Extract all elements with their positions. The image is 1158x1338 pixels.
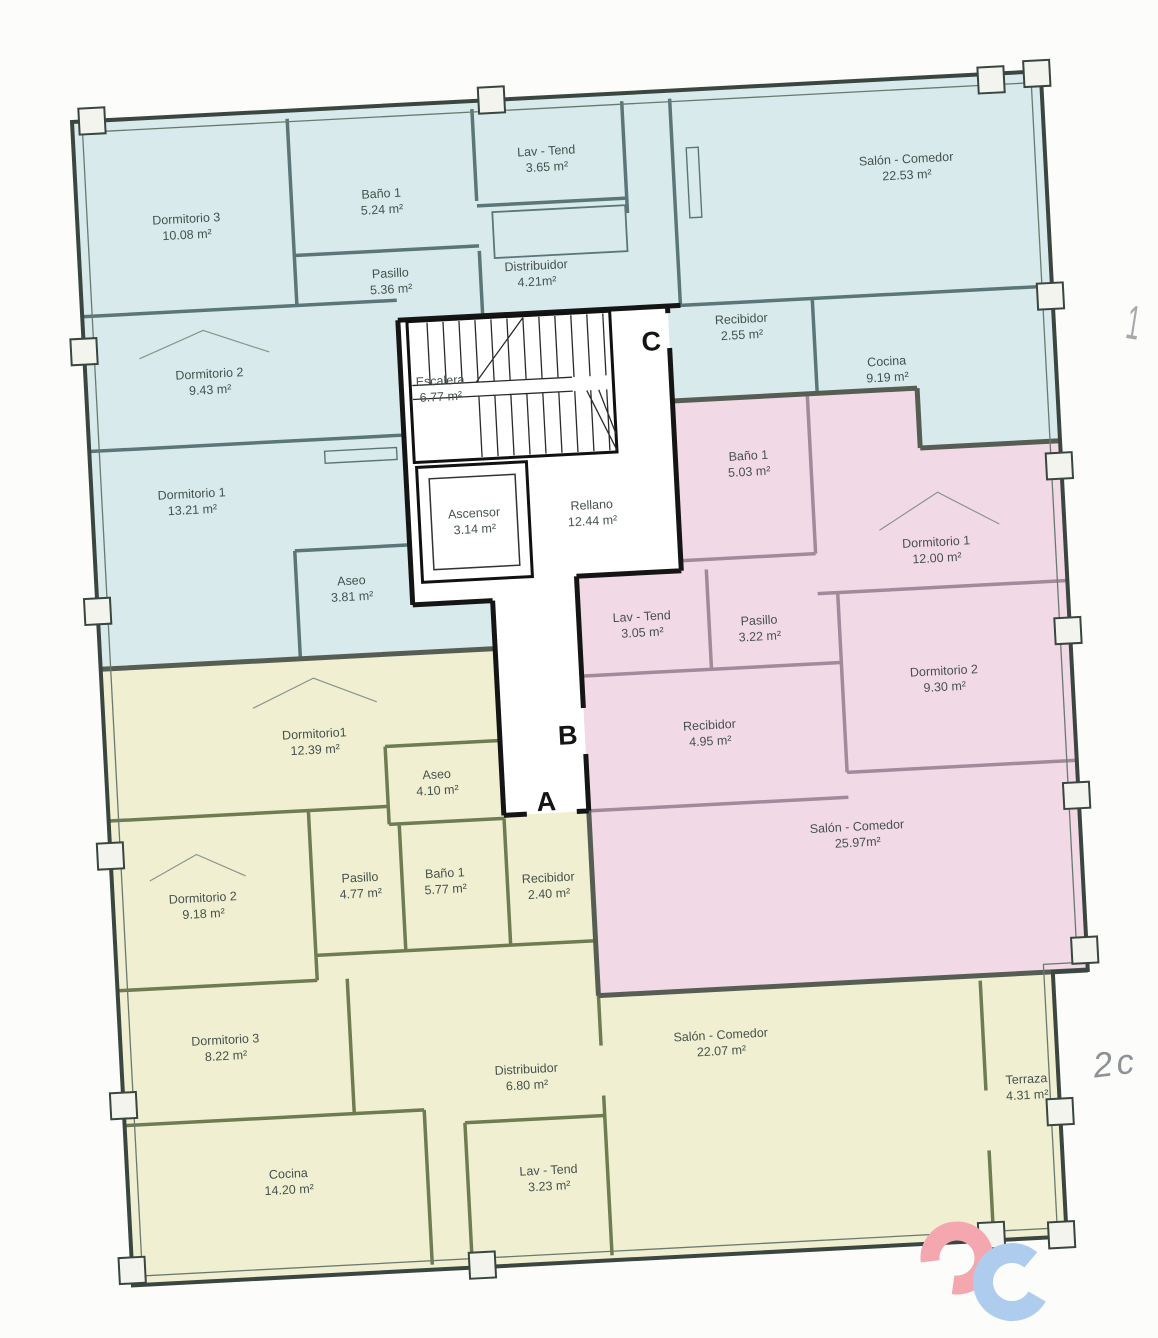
room-name: Escalera — [415, 373, 464, 390]
room-label-c-bano1: Baño 15.24 m² — [360, 185, 404, 220]
room-area: 3.05 m² — [613, 623, 672, 642]
room-label-c-dormitorio3: Dormitorio 310.08 m² — [152, 209, 222, 245]
room-label-a-salon: Salón - Comedor22.07 m² — [673, 1025, 769, 1062]
room-area: 3.23 m² — [520, 1177, 579, 1196]
room-area: 5.03 m² — [728, 463, 771, 481]
room-area: 4.31 m² — [1006, 1086, 1049, 1104]
room-name: Terraza — [1005, 1071, 1047, 1087]
room-area: 12.44 m² — [568, 512, 618, 531]
room-name: Lav - Tend — [612, 608, 671, 625]
room-name: Cocina — [867, 353, 907, 369]
room-name: Distribuidor — [504, 257, 568, 274]
room-label-a-pasillo: Pasillo4.77 m² — [338, 869, 382, 904]
room-name: Ascensor — [448, 505, 501, 522]
room-name: Baño 1 — [361, 186, 401, 202]
room-name: Recibidor — [714, 311, 767, 328]
room-name: Dormitorio 2 — [168, 889, 237, 907]
scanned-floor-plan-page: Dormitorio 310.08 m² Baño 15.24 m² Lav -… — [0, 0, 1158, 1338]
room-area: 12.39 m² — [283, 740, 348, 760]
room-area: 4.21m² — [505, 272, 569, 292]
room-label-c-pasillo: Pasillo5.36 m² — [369, 264, 413, 299]
room-name: Recibidor — [683, 717, 736, 734]
room-area: 4.95 m² — [684, 732, 738, 751]
room-name: Lav - Tend — [519, 1162, 578, 1179]
room-label-b-recibidor: Recibidor4.95 m² — [683, 716, 737, 751]
room-label-ascensor: Ascensor3.14 m² — [448, 504, 502, 539]
room-area: 3.14 m² — [448, 520, 501, 539]
room-name: Cocina — [269, 1166, 309, 1182]
room-label-c-salon: Salón - Comedor22.53 m² — [858, 149, 954, 186]
room-label-a-cocina: Cocina14.20 m² — [263, 1165, 314, 1200]
room-label-b-pasillo: Pasillo3.22 m² — [737, 611, 781, 646]
room-label-c-distribuidor: Distribuidor4.21m² — [504, 256, 569, 292]
room-name: Dormitorio 2 — [175, 365, 244, 383]
room-label-c-lavtend: Lav - Tend3.65 m² — [517, 141, 577, 176]
handwritten-mark-right: 2c — [1091, 1041, 1141, 1086]
room-area: 6.77 m² — [416, 388, 465, 407]
room-area: 3.22 m² — [738, 628, 781, 646]
room-area: 4.77 m² — [339, 885, 382, 903]
room-name: Aseo — [422, 767, 451, 782]
room-area: 5.24 m² — [360, 201, 403, 219]
room-area: 9.19 m² — [866, 369, 909, 387]
room-name: Baño 1 — [425, 865, 465, 881]
room-label-escalera: Escalera6.77 m² — [415, 372, 465, 407]
room-label-a-aseo: Aseo4.10 m² — [415, 765, 459, 800]
room-name: Rellano — [570, 497, 613, 513]
room-label-b-lavtend: Lav - Tend3.05 m² — [612, 607, 672, 642]
room-name: Dormitorio 2 — [910, 662, 979, 680]
floor-plan: Dormitorio 310.08 m² Baño 15.24 m² Lav -… — [72, 70, 1117, 1300]
room-name: Distribuidor — [494, 1061, 558, 1078]
apartment-letter-b: B — [557, 720, 578, 752]
room-label-c-aseo: Aseo3.81 m² — [330, 572, 374, 607]
room-label-b-dormitorio1: Dormitorio 112.00 m² — [902, 532, 972, 568]
room-area: 2.55 m² — [715, 326, 769, 345]
room-area: 3.81 m² — [331, 588, 374, 606]
room-label-b-salon: Salón - Comedor25.97m² — [809, 816, 905, 853]
room-area: 2.40 m² — [522, 885, 576, 904]
room-name: Aseo — [337, 573, 366, 588]
room-name: Pasillo — [341, 870, 379, 886]
room-name: Recibidor — [521, 869, 574, 886]
room-label-a-dormitorio3: Dormitorio 38.22 m² — [191, 1030, 261, 1066]
room-label-a-dormitorio1: Dormitorio112.39 m² — [282, 724, 348, 760]
room-label-a-terraza: Terraza4.31 m² — [1005, 1070, 1049, 1105]
room-area: 6.80 m² — [495, 1076, 559, 1096]
room-label-rellano: Rellano12.44 m² — [567, 496, 618, 531]
room-name: Dormitorio 3 — [191, 1031, 260, 1049]
room-name: Baño 1 — [728, 448, 768, 464]
room-label-c-dormitorio1: Dormitorio 113.21 m² — [157, 484, 227, 520]
room-label-a-distribuidor: Distribuidor6.80 m² — [494, 1060, 559, 1096]
room-label-a-recibidor: Recibidor2.40 m² — [521, 868, 575, 903]
room-label-c-recibidor: Recibidor2.55 m² — [714, 310, 768, 345]
room-area: 5.36 m² — [370, 280, 413, 298]
room-area: 5.77 m² — [424, 880, 467, 898]
room-label-c-dormitorio2: Dormitorio 29.43 m² — [175, 364, 245, 400]
room-label-a-dormitorio2: Dormitorio 29.18 m² — [168, 888, 238, 924]
room-label-b-bano1: Baño 15.03 m² — [727, 447, 771, 482]
apartment-letter-a: A — [536, 786, 557, 818]
handwritten-mark-top-right: 1 — [1122, 295, 1144, 351]
room-area: 3.65 m² — [518, 158, 577, 177]
apartment-letter-c: C — [641, 326, 662, 358]
room-name: Lav - Tend — [517, 142, 576, 159]
room-name: Pasillo — [740, 613, 778, 629]
room-label-c-cocina: Cocina9.19 m² — [865, 352, 909, 387]
room-label-b-dormitorio2: Dormitorio 29.30 m² — [910, 661, 980, 697]
room-label-a-lavtend: Lav - Tend3.23 m² — [519, 1161, 579, 1196]
room-area: 14.20 m² — [264, 1181, 314, 1200]
room-label-a-bano1: Baño 15.77 m² — [423, 864, 467, 899]
room-name: Pasillo — [372, 265, 410, 281]
room-area: 4.10 m² — [416, 782, 459, 800]
